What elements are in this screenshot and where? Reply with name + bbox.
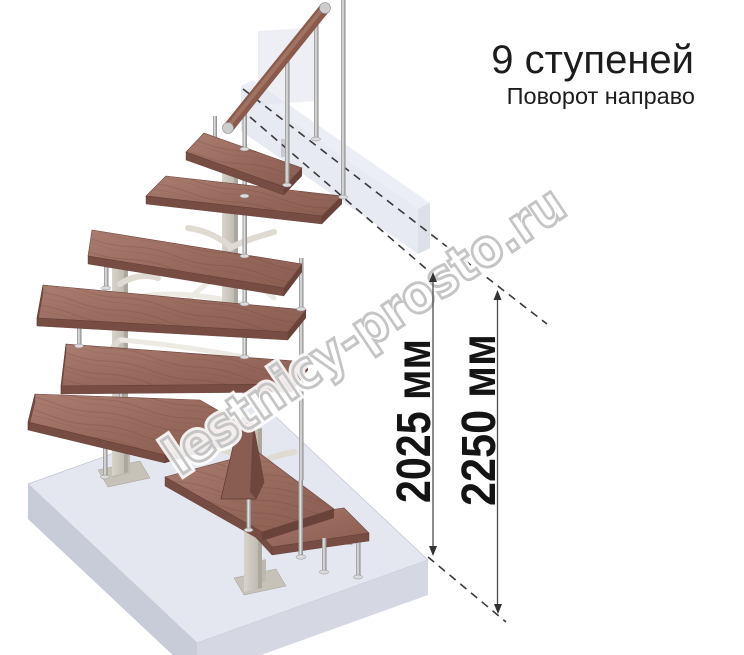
page-title: 9 ступеней — [491, 38, 694, 82]
dimension-2250: 2250 мм — [453, 290, 506, 614]
handrail-end-cap — [320, 3, 331, 14]
ghost-upper-floor-slab — [241, 27, 430, 254]
staircase-illustration: lestnicy-prosto.ru lestnicy-prosto.ru 20… — [0, 0, 744, 655]
dashed-projection-line-floor — [428, 557, 506, 622]
dimension-label-2250: 2250 мм — [453, 334, 506, 506]
page-subtitle: Поворот направо — [507, 83, 695, 109]
dimension-label-2025: 2025 мм — [388, 339, 441, 503]
staircase-product-image: lestnicy-prosto.ru lestnicy-prosto.ru 20… — [0, 0, 744, 655]
step1-leg — [322, 538, 327, 572]
handrail-end-cap — [223, 123, 234, 134]
step1-leg — [356, 543, 361, 577]
